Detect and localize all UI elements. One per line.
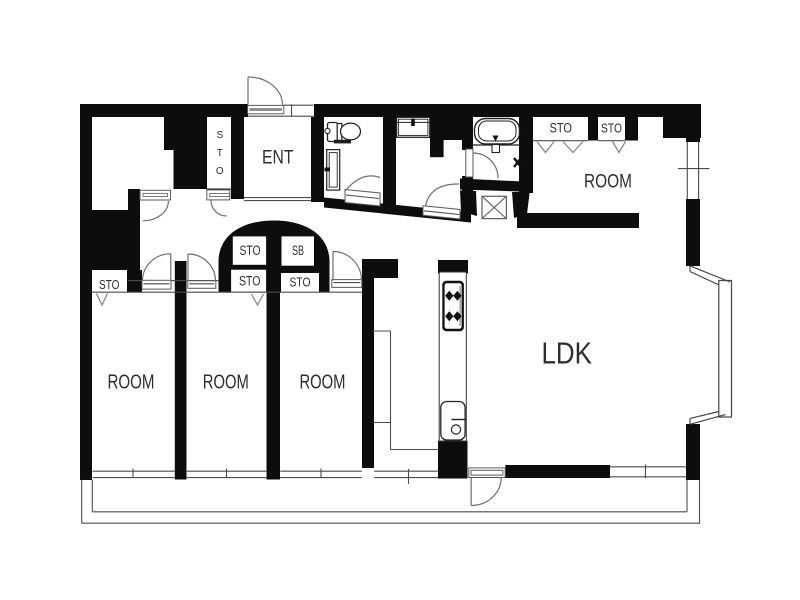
svg-text:STO: STO bbox=[239, 274, 261, 289]
svg-text:S: S bbox=[217, 130, 224, 141]
svg-text:ROOM: ROOM bbox=[300, 371, 346, 393]
svg-text:STO: STO bbox=[290, 274, 311, 289]
svg-text:O: O bbox=[216, 166, 224, 177]
svg-text:ROOM: ROOM bbox=[203, 371, 249, 393]
svg-text:STO: STO bbox=[601, 121, 622, 136]
svg-text:SB: SB bbox=[292, 243, 304, 258]
svg-text:LDK: LDK bbox=[542, 337, 593, 371]
svg-text:ENT: ENT bbox=[262, 147, 294, 169]
svg-text:T: T bbox=[217, 148, 223, 159]
svg-text:ROOM: ROOM bbox=[584, 171, 632, 193]
svg-text:ROOM: ROOM bbox=[108, 371, 155, 393]
svg-text:STO: STO bbox=[240, 243, 261, 258]
svg-text:STO: STO bbox=[550, 121, 573, 136]
svg-text:STO: STO bbox=[99, 278, 120, 292]
